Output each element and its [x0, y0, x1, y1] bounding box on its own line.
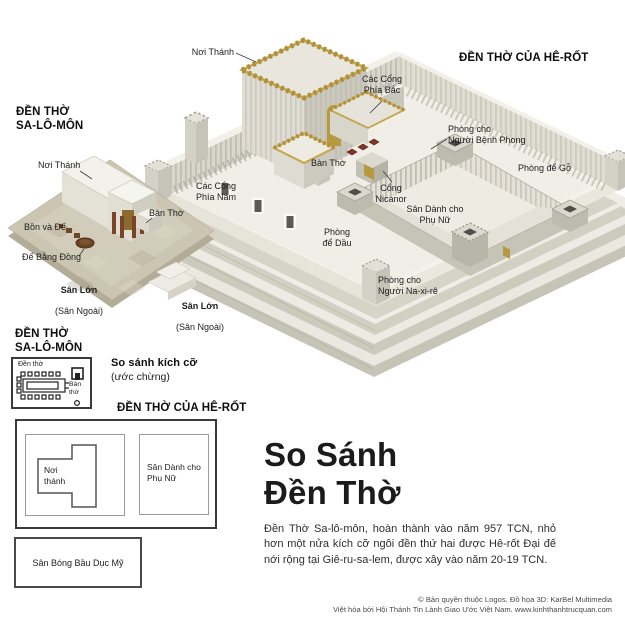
- great-court-2-title: Sân Lớn: [169, 301, 231, 312]
- herod-plan-women-court-area: Sân Dành cho Phụ Nữ: [139, 434, 209, 515]
- comparison-herod-heading: ĐỀN THỜ CỦA HÊ-RỐT: [117, 402, 246, 416]
- football-field-box: Sân Bóng Bầu Dục Mỹ: [14, 537, 142, 588]
- comparison-solomon-heading: ĐỀN THỜ SA-LÔ-MÔN: [15, 328, 82, 356]
- page-title: So Sánh Đền Thờ: [264, 436, 401, 513]
- size-comparison-title: So sánh kích cỡ: [111, 357, 197, 370]
- label-north-gates: Các Cổng Phía Bắc: [350, 74, 414, 95]
- label-bronze-sea: Đế Bằng Đồng: [22, 252, 81, 263]
- great-court-1-title: Sân Lớn: [48, 285, 110, 296]
- herod-heading: ĐỀN THỜ CỦA HÊ-RỐT: [459, 52, 588, 66]
- football-field-label: Sân Bóng Bầu Dục Mỹ: [32, 558, 123, 568]
- herod-plan-sanctuary-area: Nơi thánh: [25, 434, 125, 516]
- great-court-2-sub: (Sân Ngoài): [169, 322, 231, 333]
- credits-line-2: Việt hóa bởi Hội Thánh Tin Lành Giao Ước…: [312, 604, 612, 615]
- herod-plan-sanctuary-label: Nơi thánh: [44, 465, 65, 486]
- label-solomon-noi-thanh: Nơi Thánh: [38, 160, 80, 171]
- label-women-court: Sân Dành cho Phụ Nữ: [393, 204, 477, 225]
- label-south-gates: Các Cổng Phía Nam: [184, 181, 248, 202]
- label-nazirite-chamber: Phòng cho Người Na-xi-rê: [378, 275, 438, 296]
- herod-sanctuary-plan: [26, 435, 124, 515]
- label-herod-noi-thanh: Nơi Thánh: [178, 47, 234, 58]
- altar-symbol: [75, 373, 80, 380]
- label-basins-stands: Bồn và Đế: [24, 222, 66, 233]
- label-great-court-2: Sân Lớn (Sân Ngoài): [169, 290, 231, 343]
- size-comparison-subtitle: (ước chừng): [111, 371, 170, 383]
- solomon-plan-altar-label: Bàn thờ: [69, 381, 81, 398]
- label-wood-chamber: Phòng để Gỗ: [518, 163, 571, 174]
- label-nicanor-gate: Cổng Nicanor: [366, 183, 416, 204]
- solomon-heading: ĐỀN THỜ SA-LÔ-MÔN: [16, 106, 83, 134]
- label-oil-chamber: Phòng để Dầu: [314, 227, 360, 248]
- solomon-plan-temple-label: Đền thờ: [18, 361, 43, 370]
- great-court-1-sub: (Sân Ngoài): [48, 306, 110, 317]
- label-herod-altar: Bàn Thờ: [311, 158, 346, 169]
- solomon-plan-box: Đền thờ Bàn thờ: [11, 357, 92, 409]
- infographic-page: ĐỀN THỜ CỦA HÊ-RỐT Nơi Thánh Các Cổng Ph…: [0, 0, 625, 625]
- herod-plan-box: Nơi thánh Sân Dành cho Phụ Nữ: [15, 419, 217, 529]
- label-solomon-altar: Bàn Thờ: [149, 208, 184, 219]
- bronze-sea: [76, 238, 94, 248]
- label-lepers-chamber: Phòng cho Người Bệnh Phong: [448, 124, 525, 145]
- label-great-court-1: Sân Lớn (Sân Ngoài): [48, 274, 110, 327]
- description-paragraph: Đền Thờ Sa-lô-môn, hoàn thành vào năm 95…: [264, 522, 556, 568]
- herod-plan-women-label: Sân Dành cho Phụ Nữ: [147, 462, 201, 483]
